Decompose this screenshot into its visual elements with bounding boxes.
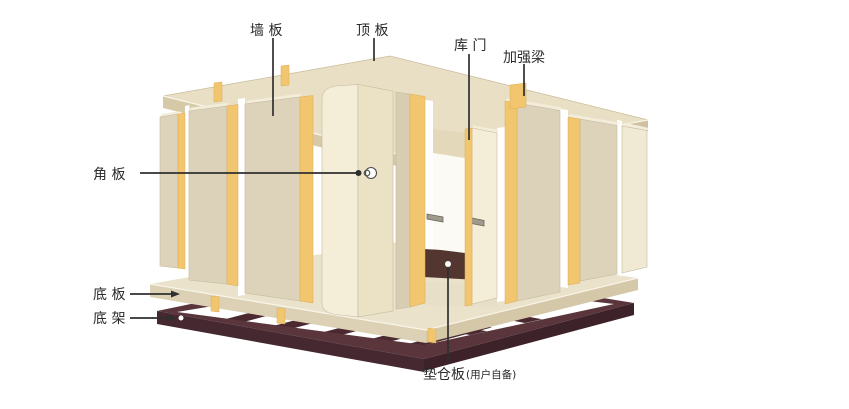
door-lintel [433,129,465,158]
wall-panel [245,97,300,301]
panel-edge-strip [227,105,238,287]
floor-strip [277,308,285,324]
roof-strip [214,82,222,102]
leader-corner-dot [356,170,362,176]
label-floor-panel: 底 板 [93,287,125,303]
wall-panel [622,126,647,273]
label-door: 库 门 [454,38,486,54]
door-opening-interior [433,153,465,253]
label-base-frame: 底 架 [93,311,125,327]
label-corner-panel: 角 板 [93,167,125,183]
label-pallet-note: (用户自备) [466,368,516,381]
wall-panel [160,114,178,268]
corner-panel-front [322,85,358,318]
panel-edge-strip [178,113,185,269]
floor-strip [211,296,219,312]
wall-panel [580,119,617,281]
door-jamb-strip [410,94,425,307]
door-side-panel [396,92,410,309]
corner-panel [322,85,393,318]
panel-edge-strip [505,101,517,304]
label-reinforce-beam: 加强梁 [503,50,545,66]
door-leaf-strip [465,128,472,306]
assembly-diagram: 墙 板 顶 板 库 门 加强梁 角 板 底 板 底 架 垫仓板 (用户自备) [0,0,849,409]
label-roof-panel: 顶 板 [356,23,388,39]
panel-edge-strip [300,96,313,304]
panel-edge-strip [568,117,580,285]
corner-panel-side [358,85,393,318]
wall-panel [189,106,227,284]
pallet-marker-dot [445,261,451,267]
wall-panel [517,103,560,301]
label-pallet: 垫仓板 [423,367,465,383]
label-wall-panel: 墙 板 [250,23,282,39]
diagram-stage: 墙 板 顶 板 库 门 加强梁 角 板 底 板 底 架 垫仓板 (用户自备) [0,0,849,409]
door-leaf [472,128,497,304]
frame-marker-dot [179,316,184,321]
floor-strip [428,328,436,343]
corner-marker-icon [366,168,377,179]
roof-strip [281,65,289,86]
